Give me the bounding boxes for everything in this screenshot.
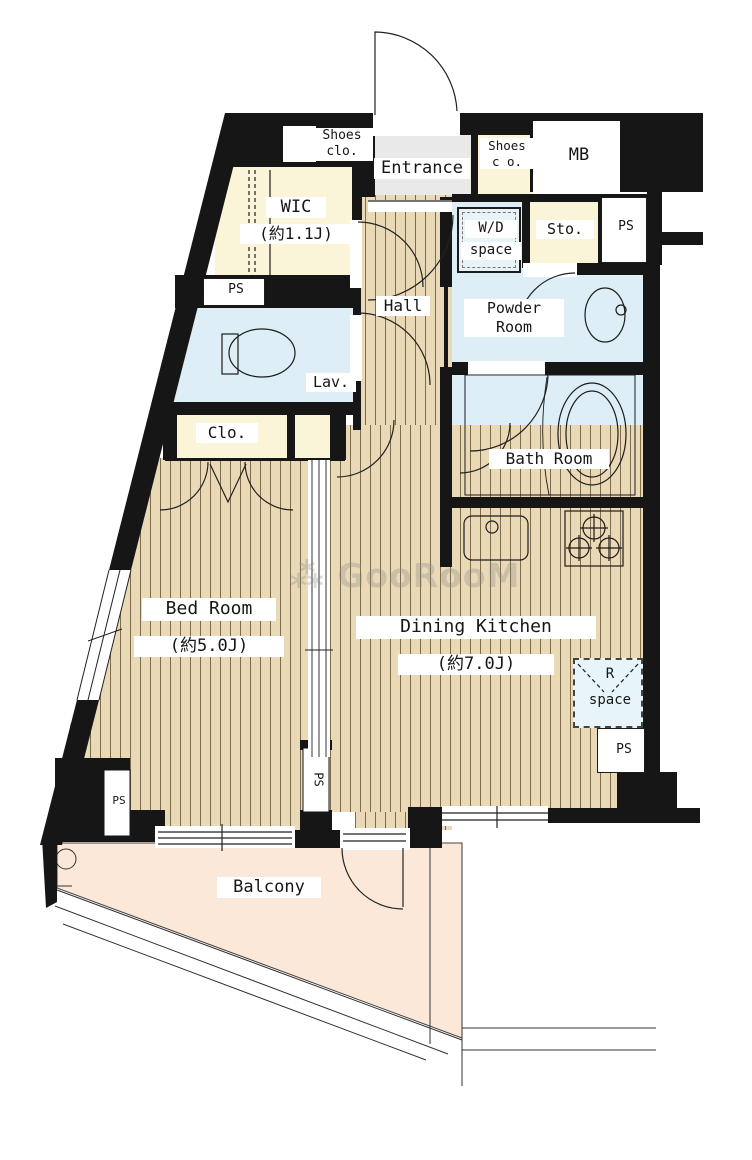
label-lavatory: Lav. <box>306 373 356 392</box>
label-ps-upper-left: PS <box>216 282 256 298</box>
label-bath-room: Bath Room <box>489 449 609 469</box>
watermark: ⁂ GooRooM <box>290 556 520 595</box>
entrance-door-arc <box>375 32 457 115</box>
label-r-space-line1: R <box>597 666 623 684</box>
shoes-left-line1: Shoes <box>322 128 361 143</box>
watermark-text: GooRooM <box>337 556 520 595</box>
wd-space-box <box>457 207 521 273</box>
balcony-drain <box>56 849 76 869</box>
label-wd-line2: space <box>461 242 521 260</box>
label-entrance: Entrance <box>374 158 470 179</box>
powder-line2: Room <box>496 318 532 336</box>
watermark-icon: ⁂ <box>290 556 325 595</box>
label-r-space-line2: space <box>578 692 642 710</box>
powder-line1: Powder <box>487 299 541 317</box>
shoes-right-line2: c o. <box>492 154 522 169</box>
label-ps-top-right: PS <box>608 219 644 235</box>
label-storage: Sto. <box>536 220 594 239</box>
label-ps-middle: PS <box>311 764 326 796</box>
label-dining-kitchen: Dining Kitchen <box>356 616 596 639</box>
label-ps-bottom-right: PS <box>606 742 642 758</box>
label-shoes-closet-right: Shoesc o. <box>480 138 534 169</box>
label-balcony: Balcony <box>217 877 321 898</box>
balcony-door-frame <box>343 834 406 841</box>
label-wd-line1: W/D <box>465 220 517 238</box>
label-ps-bottom-left: PS <box>106 794 132 808</box>
label-bedroom: Bed Room <box>142 598 276 621</box>
label-meter-box: MB <box>560 145 598 166</box>
shoes-left-line2: clo. <box>326 144 357 159</box>
label-hall: Hall <box>376 296 430 316</box>
label-shoes-closet-left: Shoesclo. <box>311 128 373 161</box>
balcony-structure <box>42 838 656 1086</box>
label-bedroom-size: (約5.0J) <box>134 636 284 657</box>
balcony-railing <box>55 890 462 1060</box>
label-wic-size: (約1.1J) <box>240 224 352 244</box>
label-wic: WIC <box>266 197 326 218</box>
balcony-door-arc <box>342 848 403 909</box>
floor-plan: Shoesclo. Entrance Shoesc o. MB WIC (約1.… <box>0 0 752 1160</box>
label-dining-kitchen-size: (約7.0J) <box>398 654 554 675</box>
shoes-right-line1: Shoes <box>488 138 526 153</box>
wic-floor <box>215 158 358 285</box>
closet2-floor <box>292 408 332 460</box>
label-closet: Clo. <box>196 423 258 443</box>
label-powder-room: PowderRoom <box>464 299 564 337</box>
